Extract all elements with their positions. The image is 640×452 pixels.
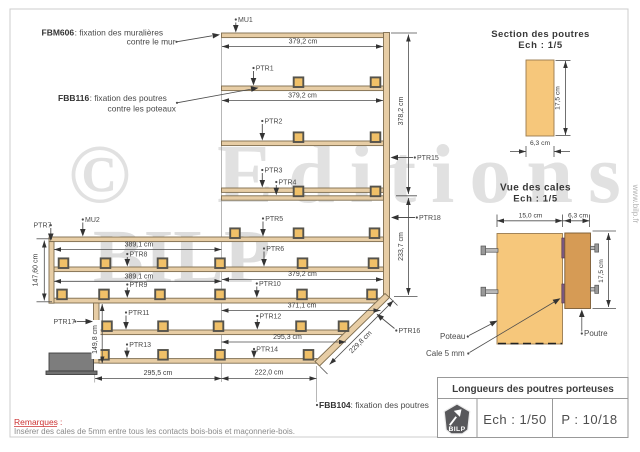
svg-text:Longueurs des poutres porteuse: Longueurs des poutres porteuses: [452, 384, 614, 395]
svg-text:15,0 cm: 15,0 cm: [519, 213, 543, 220]
svg-text:379,2 cm: 379,2 cm: [288, 271, 317, 278]
svg-text:BILP: BILP: [93, 215, 270, 299]
svg-text:Insérer des cales de 5mm entre: Insérer des cales de 5mm entre tous les …: [14, 427, 295, 436]
svg-text:PTR5: PTR5: [265, 216, 283, 223]
svg-text:Ech : 1/50: Ech : 1/50: [483, 412, 547, 427]
svg-text:BILP: BILP: [448, 426, 465, 433]
svg-text:389,1 cm: 389,1 cm: [125, 242, 154, 249]
svg-text:PTR15: PTR15: [417, 155, 439, 162]
svg-text:371,1 cm: 371,1 cm: [288, 303, 317, 310]
svg-text:147,60 cm: 147,60 cm: [33, 253, 40, 286]
svg-text:P : 10/18: P : 10/18: [561, 412, 617, 427]
svg-text:PTR2: PTR2: [265, 119, 283, 126]
svg-text:PTR11: PTR11: [128, 310, 149, 317]
svg-text:PTR18: PTR18: [419, 215, 441, 222]
svg-text:PTR4: PTR4: [279, 180, 297, 187]
svg-text:PTR13: PTR13: [129, 342, 151, 349]
svg-text:Ech : 1/5: Ech : 1/5: [518, 40, 563, 51]
svg-text:Cale 5 mm: Cale 5 mm: [426, 349, 465, 358]
svg-text:379,2 cm: 379,2 cm: [288, 93, 317, 100]
svg-text:PTR17: PTR17: [54, 319, 76, 326]
svg-text:Poutre: Poutre: [584, 329, 608, 338]
svg-text:222,0 cm: 222,0 cm: [255, 370, 284, 377]
svg-text:: fixation des poutres: : fixation des poutres: [351, 400, 429, 410]
svg-text:Ech : 1/5: Ech : 1/5: [513, 194, 558, 205]
svg-text:PTR1: PTR1: [256, 66, 274, 73]
svg-text:6,3 cm: 6,3 cm: [530, 140, 550, 147]
svg-text:FBB116: FBB116: [58, 93, 89, 103]
svg-text:PTR8: PTR8: [130, 252, 148, 259]
svg-text:FBM606: FBM606: [42, 28, 75, 38]
svg-text:: fixation des poutres: : fixation des poutres: [90, 93, 167, 103]
svg-text:295,5 cm: 295,5 cm: [144, 370, 173, 377]
svg-text:PTR7: PTR7: [34, 223, 52, 230]
svg-text:389,1 cm: 389,1 cm: [125, 273, 154, 280]
svg-text:Poteau: Poteau: [440, 332, 465, 341]
svg-text:MU2: MU2: [85, 217, 100, 224]
svg-text:PTR9: PTR9: [130, 282, 148, 289]
svg-text:PTR6: PTR6: [266, 246, 284, 253]
svg-text:www.bilp.fr: www.bilp.fr: [631, 184, 640, 224]
svg-text:149,8 cm: 149,8 cm: [92, 325, 99, 354]
svg-text:Vue des cales: Vue des cales: [500, 183, 571, 194]
svg-text:378,2 cm: 378,2 cm: [398, 96, 405, 125]
svg-text:PTR12: PTR12: [260, 314, 282, 321]
svg-text:17,5 cm: 17,5 cm: [598, 259, 605, 283]
svg-text:PTR14: PTR14: [256, 347, 278, 354]
svg-text:Section des poutres: Section des poutres: [491, 29, 589, 40]
svg-text:6,3 cm: 6,3 cm: [568, 213, 588, 220]
svg-text:Remarques: Remarques: [14, 417, 58, 427]
svg-text:FBB104: FBB104: [319, 400, 351, 410]
svg-text::: :: [60, 417, 62, 427]
svg-text:PTR10: PTR10: [259, 281, 281, 288]
svg-text:233,7 cm: 233,7 cm: [398, 232, 405, 261]
svg-text:©: ©: [68, 128, 131, 221]
svg-text:379,2 cm: 379,2 cm: [289, 39, 318, 46]
svg-text:PTR3: PTR3: [265, 168, 283, 175]
svg-text:PTR16: PTR16: [399, 328, 421, 335]
svg-text:295,3 cm: 295,3 cm: [273, 334, 302, 341]
svg-text:contre le mur: contre le mur: [127, 37, 176, 47]
svg-text:17,5 cm: 17,5 cm: [555, 86, 562, 110]
svg-text:MU1: MU1: [238, 17, 253, 24]
svg-text:contre les poteaux: contre les poteaux: [108, 104, 177, 114]
